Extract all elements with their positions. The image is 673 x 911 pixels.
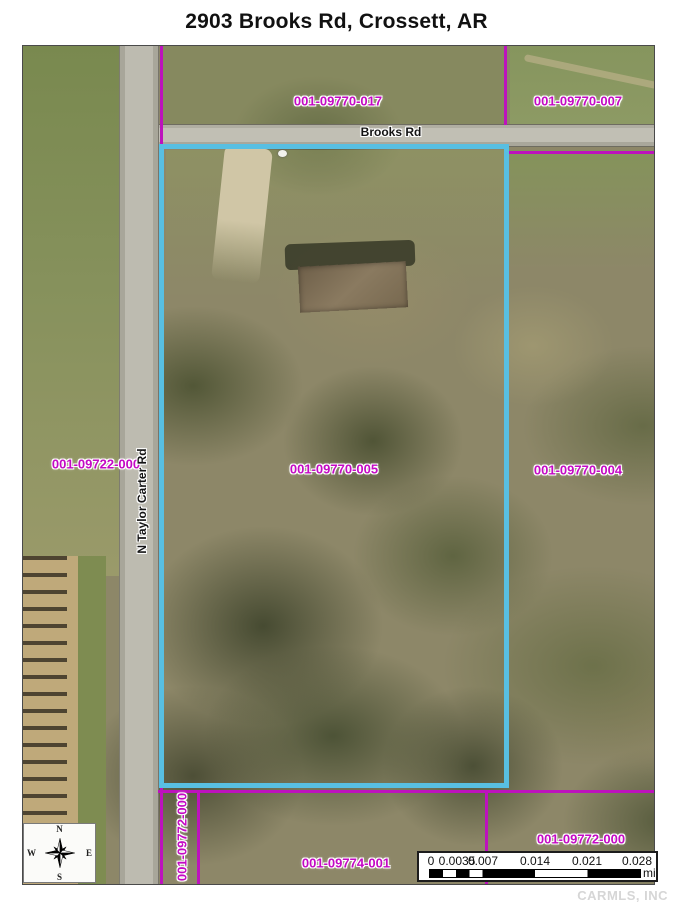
- scale-bar: 0 0.0035 0.007 0.014 0.021 0.028 mi: [417, 851, 658, 882]
- compass-rose: N S W E: [23, 823, 96, 883]
- compass-east-label: E: [86, 848, 92, 858]
- parcel-label-subject: 001-09770-005: [290, 462, 378, 477]
- parcel-label-southeast: 001-09772-000: [537, 832, 625, 847]
- parcel-label-south-strip: 001-09772-000: [175, 793, 190, 881]
- compass-star-icon: [41, 834, 79, 872]
- scale-unit-label: mi: [643, 866, 656, 880]
- parcel-boundary-line-southstrip: [197, 790, 200, 884]
- parcel-boundary-line-east: [507, 151, 654, 154]
- parcel-map: 001-09770-017 001-09770-007 001-09722-00…: [22, 45, 655, 885]
- parcel-boundary-line-north: [504, 46, 507, 125]
- parcel-label-west: 001-09722-000: [52, 457, 140, 472]
- watermark: CARMLS, INC: [577, 888, 668, 903]
- field-east: [510, 150, 654, 270]
- field-north: [162, 46, 506, 124]
- parcel-label-south: 001-09774-001: [302, 856, 390, 871]
- road-label-brooks: Brooks Rd: [361, 125, 422, 139]
- road-label-taylor-carter: N Taylor Carter Rd: [135, 448, 149, 553]
- field-west: [23, 46, 119, 576]
- scale-tick: 0.014: [520, 854, 550, 868]
- compass-west-label: W: [27, 848, 36, 858]
- scale-tick: 0.007: [468, 854, 498, 868]
- scale-bar-segments: [429, 869, 641, 878]
- parcel-label-topleft: 001-09770-017: [294, 94, 382, 109]
- page-title: 2903 Brooks Rd, Crossett, AR: [0, 10, 673, 34]
- scale-tick: 0.021: [572, 854, 602, 868]
- compass-south-label: S: [57, 872, 62, 882]
- scale-tick: 0: [428, 854, 435, 868]
- page: 2903 Brooks Rd, Crossett, AR 001-09770-0…: [0, 0, 673, 911]
- compass-north-label: N: [56, 824, 63, 834]
- parcel-label-topright: 001-09770-007: [534, 94, 622, 109]
- parcel-label-east: 001-09770-004: [534, 463, 622, 478]
- parcel-boundary-line-south: [158, 790, 654, 793]
